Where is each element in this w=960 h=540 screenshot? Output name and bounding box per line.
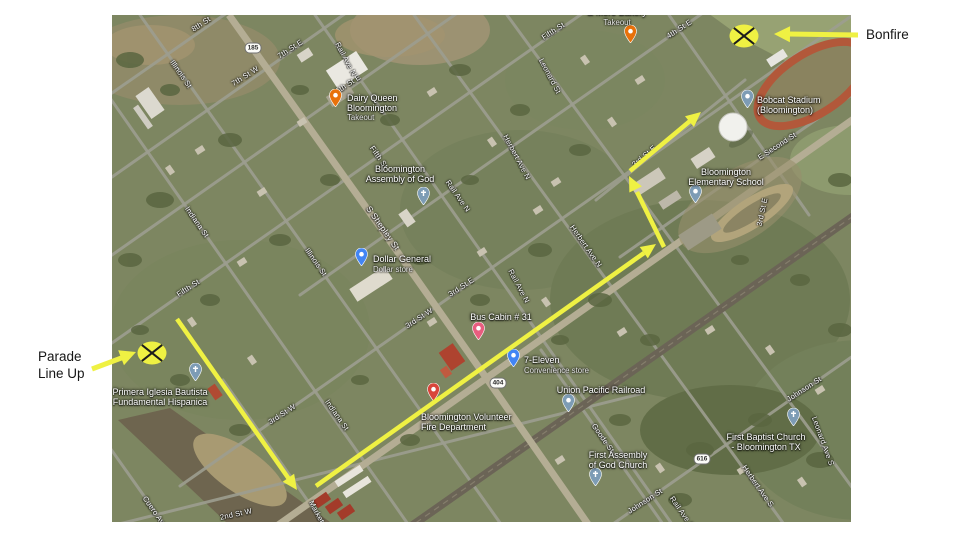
stadium-pin-icon bbox=[741, 90, 754, 108]
poi-name: Elementary School bbox=[688, 178, 764, 188]
transit-pin-icon bbox=[562, 394, 575, 412]
bonfire-text: Bonfire bbox=[866, 27, 909, 42]
highway-shield: 404 bbox=[490, 378, 507, 389]
poi-name: Union Pacific Railroad bbox=[557, 386, 646, 396]
water-tower bbox=[719, 113, 747, 141]
poi-name: Fire Department bbox=[421, 423, 512, 433]
poi-subtitle: Convenience store bbox=[524, 366, 589, 376]
poi-subtitle: Takeout bbox=[347, 113, 398, 123]
poi-label-dollar-general: Dollar GeneralDollar store bbox=[373, 255, 431, 274]
school-pin-icon bbox=[689, 185, 702, 203]
poi-name: Fundamental Hispanica bbox=[112, 398, 207, 408]
poi-name: Dollar General bbox=[373, 255, 431, 265]
parade-lineup-line1: Parade bbox=[38, 349, 82, 364]
poi-label-dairy-queen: Dairy QueenBloomingtonTakeout bbox=[347, 94, 398, 123]
shop-pin-icon bbox=[355, 248, 368, 266]
map-canvas[interactable]: 8th St7th St E7th St W6th St EFifth StFi… bbox=[112, 15, 851, 522]
poi-label-bobcat-stadium: Bobcat Stadium(Bloomington) bbox=[757, 96, 821, 115]
parade-lineup-line2: Line Up bbox=[38, 366, 85, 381]
church-pin-icon bbox=[417, 187, 430, 205]
poi-label-elementary-school: BloomingtonElementary School bbox=[688, 168, 764, 187]
poi-label-primera-iglesia: Primera Iglesia BautistaFundamental Hisp… bbox=[112, 388, 207, 407]
poi-name: Bloomington bbox=[347, 104, 398, 114]
church-pin-icon bbox=[589, 468, 602, 486]
bonfire-label: Bonfire bbox=[866, 26, 909, 43]
food-pin-icon bbox=[624, 25, 637, 43]
church-pin-icon bbox=[787, 408, 800, 426]
poi-label-seven-eleven: 7-ElevenConvenience store bbox=[524, 356, 589, 375]
poi-label-assembly-of-god: BloomingtonAssembly of God bbox=[366, 165, 435, 184]
poi-label-first-baptist: First Baptist Church- Bloomington TX bbox=[726, 433, 805, 452]
food-pin-icon bbox=[329, 89, 342, 107]
highway-shield: 185 bbox=[245, 43, 262, 54]
lodging-pin-icon bbox=[472, 322, 485, 340]
annotated-parade-map-page: 8th St7th St E7th St W6th St EFifth StFi… bbox=[0, 0, 960, 540]
poi-name: Bus Cabin # 31 bbox=[470, 313, 532, 323]
poi-subtitle: Takeout bbox=[587, 18, 647, 28]
fire-pin-icon bbox=[427, 383, 440, 401]
poi-name: Assembly of God bbox=[366, 175, 435, 185]
shop-pin-icon bbox=[507, 349, 520, 367]
poi-label-first-assembly: First Assemblyof God Church bbox=[589, 451, 648, 470]
poi-name: - Bloomington TX bbox=[726, 443, 805, 453]
map-inner: 8th St7th St E7th St W6th St EFifth StFi… bbox=[112, 15, 851, 522]
poi-name: (Bloomington) bbox=[757, 106, 821, 116]
church-pin-icon bbox=[189, 363, 202, 381]
poi-subtitle: Dollar store bbox=[373, 265, 431, 275]
poi-name: of God Church bbox=[589, 461, 648, 471]
parade-lineup-label: ParadeLine Up bbox=[38, 348, 85, 382]
poi-label-union-pacific-railroad: Union Pacific Railroad bbox=[557, 386, 646, 396]
poi-label-bus-cabin: Bus Cabin # 31 bbox=[470, 313, 532, 323]
poi-label-more-bakery: & More BakeryTakeout bbox=[587, 15, 647, 27]
poi-label-fire-department: Bloomington VolunteerFire Department bbox=[421, 413, 512, 432]
poi-name: 7-Eleven bbox=[524, 356, 589, 366]
highway-shield: 616 bbox=[694, 454, 711, 465]
